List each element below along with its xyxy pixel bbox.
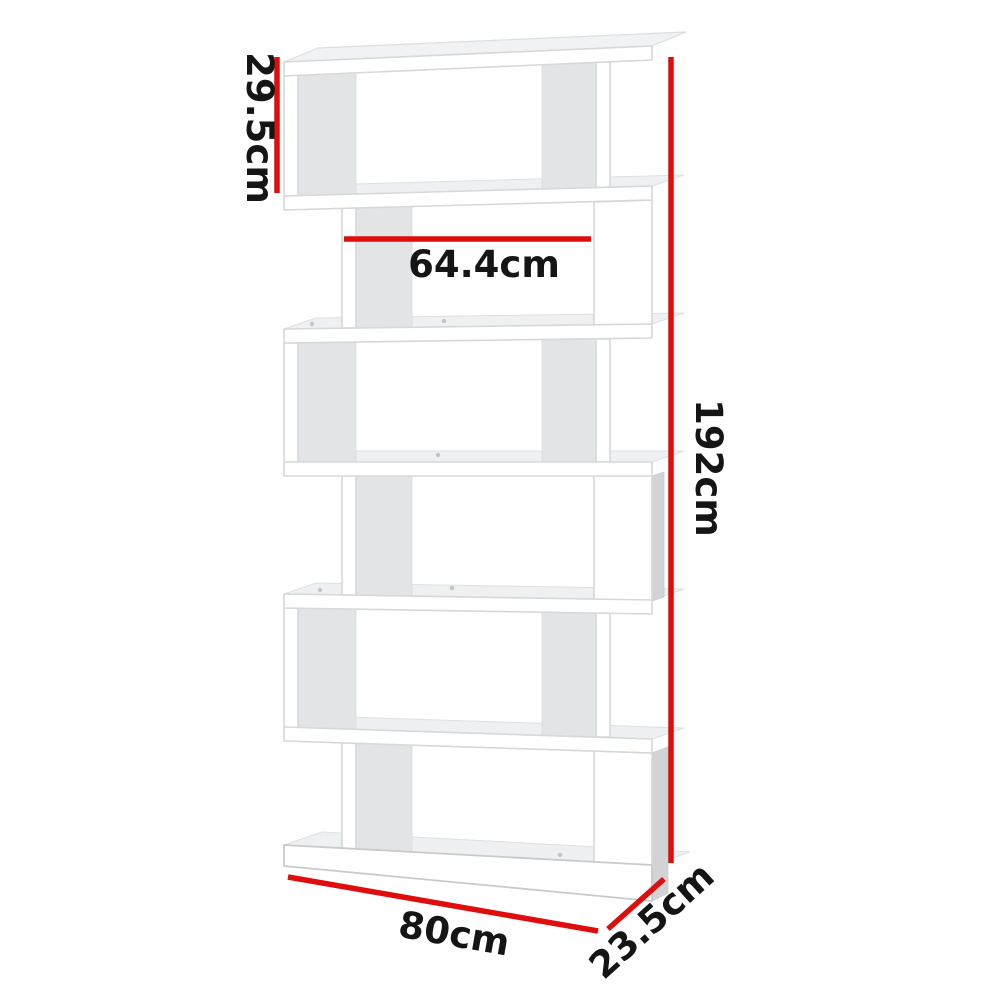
bookshelf-illustration [284,32,690,901]
shelf-board [284,462,652,476]
divider [596,62,610,188]
left-panel [284,75,298,196]
divider [342,208,356,328]
tier-4 [342,472,664,601]
right-side-panel [594,200,652,325]
right-side-panel [594,751,652,865]
divider-inner-face [356,476,412,596]
divider [342,743,356,849]
divider-inner-face [356,743,412,852]
right-side-panel-side [652,472,664,601]
divider-inner-face [542,339,596,462]
tier-3 [284,339,610,462]
divider-inner-face [356,206,412,328]
tier-1 [284,62,610,196]
right-side-panel [594,476,652,601]
divider [596,339,610,462]
left-panel-inner-face [298,342,356,462]
product-dimension-diagram: 29.5cm 64.4cm 192cm 80cm 23.5cm [0,0,1000,1000]
divider [342,476,356,595]
divider-inner-face [542,612,596,737]
left-panel-inner-face [298,73,356,196]
left-panel [284,343,298,462]
tier-height-label: 29.5cm [238,52,281,204]
left-panel [284,608,298,728]
divider-inner-face [542,62,596,189]
tier-5 [284,608,610,737]
left-panel-inner-face [298,608,356,729]
inner-width-label: 64.4cm [408,243,560,286]
dimension-diagram-canvas: 29.5cm 64.4cm 192cm 80cm 23.5cm [0,0,1000,1000]
divider [596,613,610,737]
total-height-label: 192cm [687,399,730,537]
